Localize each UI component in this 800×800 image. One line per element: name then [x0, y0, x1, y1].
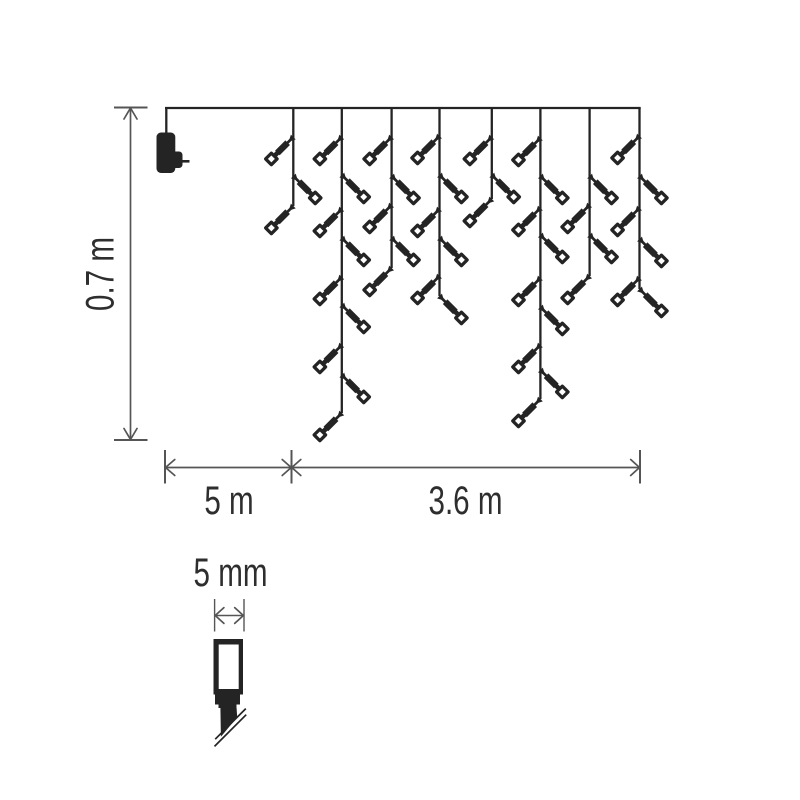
- svg-text:0.7 m: 0.7 m: [78, 237, 122, 311]
- svg-text:3.6 m: 3.6 m: [428, 479, 502, 523]
- svg-text:5 mm: 5 mm: [194, 551, 268, 595]
- svg-text:5 m: 5 m: [204, 479, 253, 523]
